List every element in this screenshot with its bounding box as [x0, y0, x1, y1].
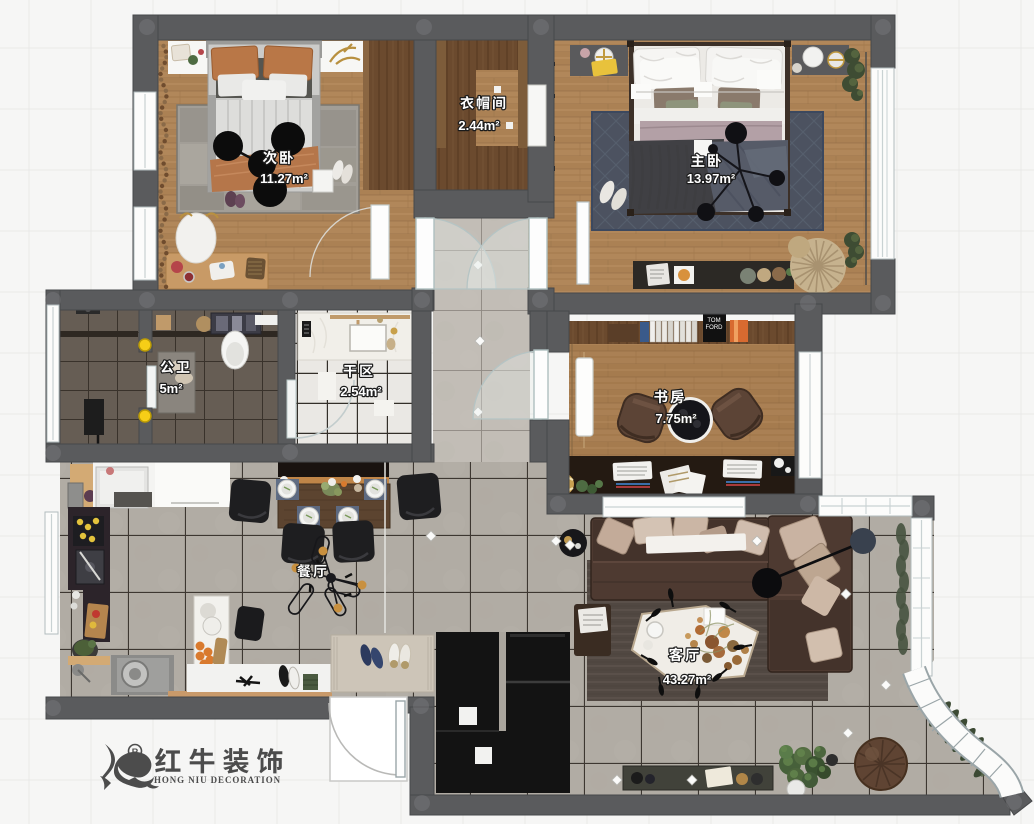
svg-text:11.27m²: 11.27m² [260, 171, 308, 186]
svg-text:2.54m²: 2.54m² [340, 384, 382, 399]
svg-text:FORD: FORD [706, 325, 724, 331]
svg-text:2.44m²: 2.44m² [458, 118, 500, 133]
svg-text:5m²: 5m² [159, 381, 183, 396]
svg-text:R: R [132, 747, 139, 757]
svg-text:43.27m²: 43.27m² [663, 672, 712, 687]
svg-text:7.75m²: 7.75m² [655, 411, 697, 426]
svg-text:HONG NIU DECORATION: HONG NIU DECORATION [154, 776, 281, 786]
svg-text:TOM: TOM [707, 318, 720, 324]
svg-text:13.97m²: 13.97m² [687, 171, 736, 186]
